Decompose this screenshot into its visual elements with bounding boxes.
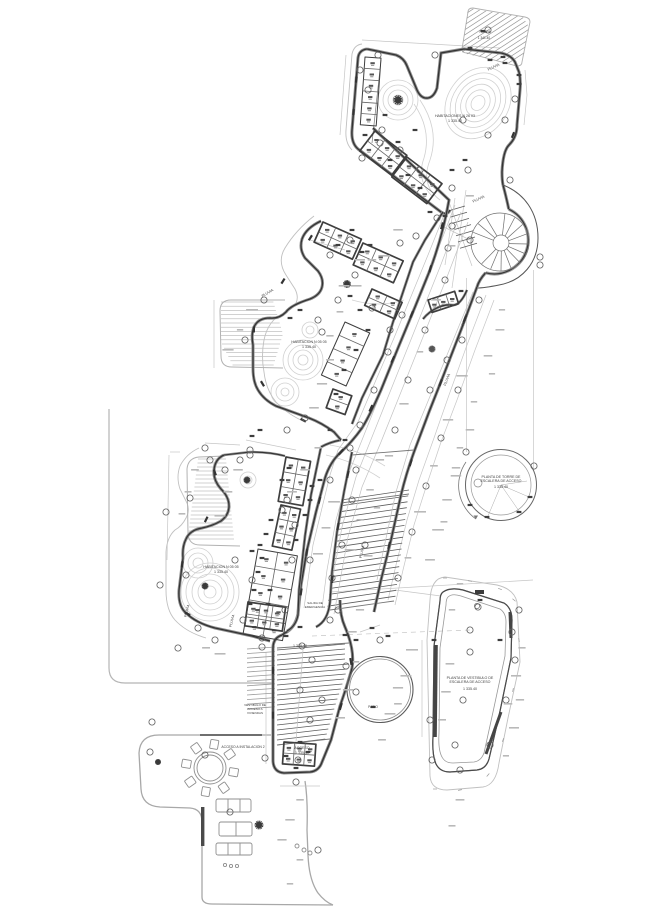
svg-text:1 341.40: 1 341.40	[478, 36, 491, 40]
svg-text:ACCESO A INSTALACION 2: ACCESO A INSTALACION 2	[221, 745, 264, 749]
svg-text:ESCALERA DE ACCESO: ESCALERA DE ACCESO	[481, 479, 522, 483]
svg-text:1 335.40: 1 335.40	[463, 687, 477, 691]
svg-text:VIVIENDAS: VIVIENDAS	[247, 711, 263, 715]
svg-text:HABITACION N 05 05: HABITACION N 05 05	[291, 340, 326, 344]
svg-text:1 335.40: 1 335.40	[448, 119, 462, 123]
svg-text:PATIO: PATIO	[368, 705, 378, 709]
svg-text:1 335.40: 1 335.40	[295, 751, 309, 755]
svg-text:1 335.40: 1 335.40	[494, 485, 508, 489]
svg-text:RAMPA: RAMPA	[479, 30, 491, 34]
svg-text:1 335.40: 1 335.40	[293, 644, 307, 648]
svg-text:1 335.40: 1 335.40	[302, 345, 316, 349]
svg-text:HABITACIONES N 26 03: HABITACIONES N 26 03	[435, 114, 475, 118]
svg-text:1 335.40: 1 335.40	[214, 570, 228, 574]
svg-text:EMERGENCIA: EMERGENCIA	[305, 605, 325, 609]
svg-text:HABITACION N 05 05: HABITACION N 05 05	[203, 565, 238, 569]
svg-text:ESCALERA DE ACCESO: ESCALERA DE ACCESO	[450, 680, 491, 684]
svg-text:ACCESO: ACCESO	[294, 746, 309, 750]
